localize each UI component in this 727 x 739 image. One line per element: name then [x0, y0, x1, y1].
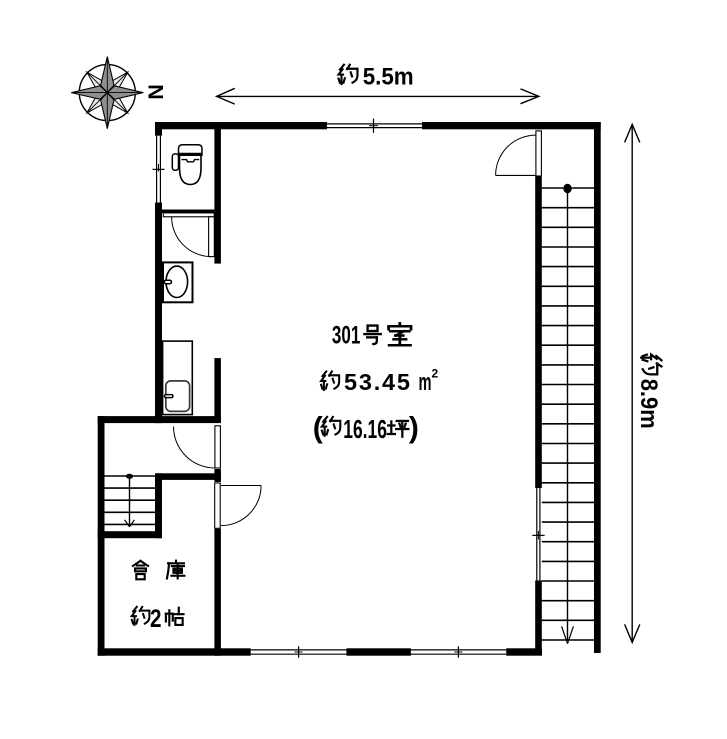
- svg-text:5.5m: 5.5m: [363, 64, 414, 91]
- svg-text:(: (: [313, 412, 323, 445]
- svg-text:m: m: [419, 369, 432, 396]
- svg-text:301: 301: [332, 322, 360, 350]
- svg-text:2: 2: [432, 367, 439, 381]
- svg-text:16.16: 16.16: [343, 414, 387, 444]
- svg-text:): ): [409, 412, 419, 445]
- svg-text:2: 2: [150, 605, 162, 633]
- svg-text:8.9m: 8.9m: [635, 379, 662, 429]
- svg-text:N: N: [144, 84, 168, 100]
- svg-text:53.45: 53.45: [344, 369, 410, 395]
